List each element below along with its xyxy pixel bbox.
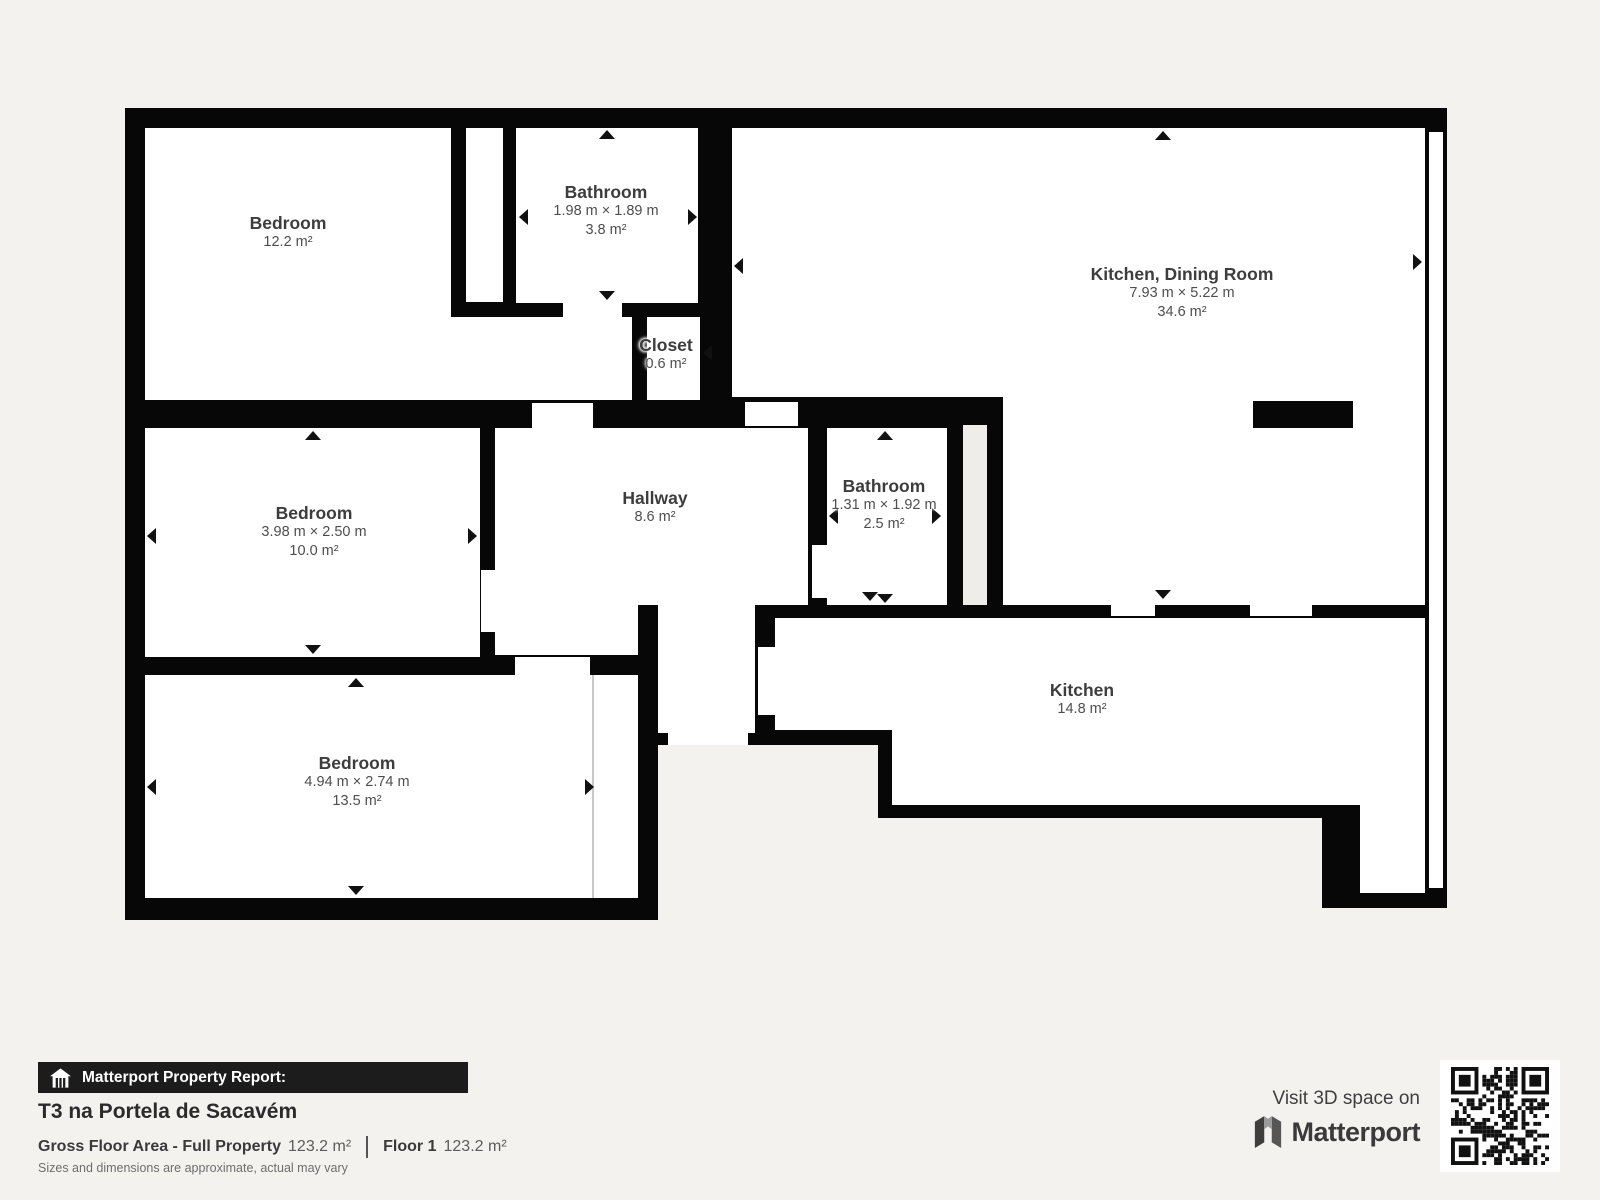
room-label-bedroom-mid: Bedroom 3.98 m × 2.50 m 10.0 m²: [261, 504, 366, 561]
room-label-bathroom-top: Bathroom 1.98 m × 1.89 m 3.8 m²: [553, 183, 658, 240]
matterport-wordmark: Matterport: [1292, 1117, 1421, 1148]
room-area: 34.6 m²: [1091, 303, 1274, 322]
report-header-bar: Matterport Property Report:: [38, 1062, 468, 1093]
room-dims: 1.31 m × 1.92 m: [831, 496, 936, 515]
house-icon: [50, 1068, 71, 1088]
room-dims: 1.98 m × 1.89 m: [553, 202, 658, 221]
stats-divider: [366, 1136, 368, 1158]
matterport-brand-row: Matterport: [1253, 1115, 1421, 1149]
room-area: 10.0 m²: [261, 542, 366, 561]
matterport-logo-icon: [1253, 1115, 1283, 1149]
floor-value: 123.2 m²: [444, 1138, 507, 1156]
room-label-closet: Closet 0.6 m²: [639, 336, 692, 374]
property-title: T3 na Portela de Sacavém: [38, 1100, 297, 1124]
room-area: 0.6 m²: [639, 355, 692, 374]
room-area: 12.2 m²: [250, 233, 327, 252]
room-area: 14.8 m²: [1050, 700, 1114, 719]
visit-text: Visit 3D space on: [1272, 1088, 1420, 1110]
room-dims: 7.93 m × 5.22 m: [1091, 284, 1274, 303]
room-name: Bedroom: [250, 214, 327, 233]
room-name: Bedroom: [261, 504, 366, 523]
room-label-hallway: Hallway 8.6 m²: [622, 489, 687, 527]
room-name: Closet: [639, 336, 692, 355]
room-name: Hallway: [622, 489, 687, 508]
kitchen-island: [1253, 401, 1353, 428]
room-label-bedroom-bottom: Bedroom 4.94 m × 2.74 m 13.5 m²: [304, 754, 409, 811]
room-dims: 4.94 m × 2.74 m: [304, 773, 409, 792]
qr-code: [1440, 1060, 1560, 1172]
shaft: [963, 425, 987, 605]
room-name: Bedroom: [304, 754, 409, 773]
area-stats: Gross Floor Area - Full Property 123.2 m…: [38, 1136, 507, 1158]
disclaimer: Sizes and dimensions are approximate, ac…: [38, 1161, 348, 1175]
visit-3d-cta: Visit 3D space on Matterport: [1140, 1088, 1420, 1149]
room-area: 3.8 m²: [553, 221, 658, 240]
room-name: Kitchen, Dining Room: [1091, 265, 1274, 284]
room-label-kitchen: Kitchen 14.8 m²: [1050, 681, 1114, 719]
qr-code-image: [1451, 1067, 1549, 1165]
room-label-kitchen-dining: Kitchen, Dining Room 7.93 m × 5.22 m 34.…: [1091, 265, 1274, 322]
report-label: Matterport Property Report:: [82, 1069, 286, 1087]
room-name: Kitchen: [1050, 681, 1114, 700]
room-label-bathroom-mid: Bathroom 1.31 m × 1.92 m 2.5 m²: [831, 477, 936, 534]
room-name: Bathroom: [831, 477, 936, 496]
room-name: Bathroom: [553, 183, 658, 202]
floor-label: Floor 1: [383, 1138, 436, 1156]
window-glass: [1429, 132, 1443, 888]
room-area: 13.5 m²: [304, 792, 409, 811]
room-area: 8.6 m²: [622, 508, 687, 527]
room-label-bedroom-top: Bedroom 12.2 m²: [250, 214, 327, 252]
room-dims: 3.98 m × 2.50 m: [261, 523, 366, 542]
room-area: 2.5 m²: [831, 515, 936, 534]
gfa-label: Gross Floor Area - Full Property: [38, 1138, 281, 1156]
gfa-value: 123.2 m²: [288, 1138, 351, 1156]
floor-plan: [0, 0, 1600, 1200]
